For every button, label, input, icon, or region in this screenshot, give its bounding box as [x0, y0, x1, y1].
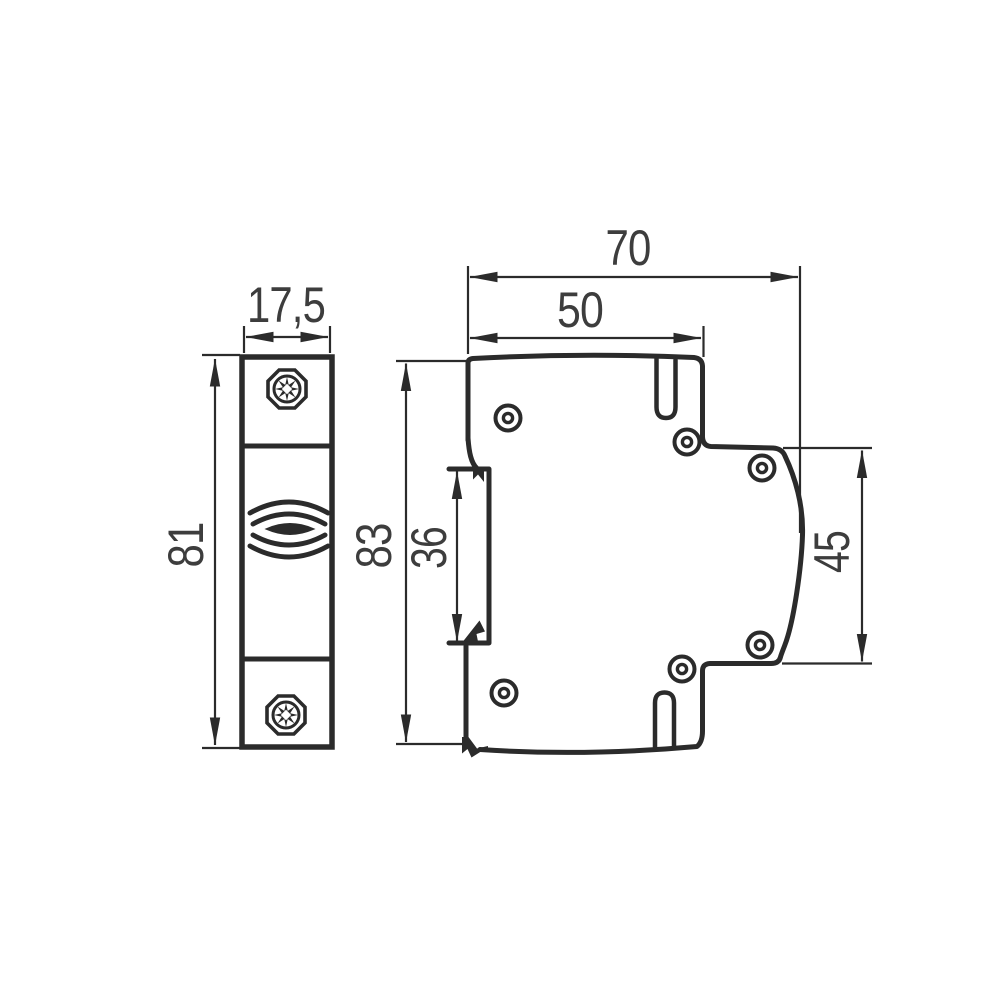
din-clip-hook-bottom: [461, 621, 485, 645]
rivet-icon: [748, 633, 773, 658]
din-clip-foot: [462, 737, 488, 758]
dim-width-17-5: 17,5: [244, 277, 330, 353]
rivet-icon: [496, 406, 521, 431]
din-clip-hook-top: [473, 469, 484, 482]
mounting-slot-top: [657, 359, 676, 418]
dimension-label: 83: [346, 524, 402, 569]
dim-din-recess-36: 36: [401, 469, 470, 643]
dimension-label: 81: [158, 523, 214, 568]
dim-upper-width-50: 50: [470, 282, 704, 357]
dimension-label: 70: [606, 220, 651, 276]
screw-icon-bottom: [267, 696, 305, 734]
rivet-icon: [750, 456, 775, 481]
side-view: 70 50 83 36 45: [346, 220, 872, 758]
rivet-icon: [675, 430, 700, 455]
buzzer-icon: [250, 502, 328, 557]
dimension-label: 17,5: [247, 277, 325, 333]
front-view: 17,5 81: [158, 277, 332, 748]
mounting-slot-bottom: [655, 693, 674, 748]
rivet-icon: [492, 681, 517, 706]
dimension-label: 36: [401, 527, 457, 569]
rivet-icon: [670, 657, 695, 682]
dim-height-81: 81: [158, 355, 240, 748]
dim-overall-width-70: 70: [468, 220, 800, 533]
technical-drawing-canvas: 17,5 81: [0, 0, 1000, 1000]
side-outline-recess-curve: [468, 438, 477, 469]
technical-drawing-page: 17,5 81: [0, 0, 1000, 1000]
dimension-label: 45: [804, 531, 860, 573]
dimension-label: 50: [557, 282, 603, 338]
screw-icon-top: [268, 370, 306, 408]
